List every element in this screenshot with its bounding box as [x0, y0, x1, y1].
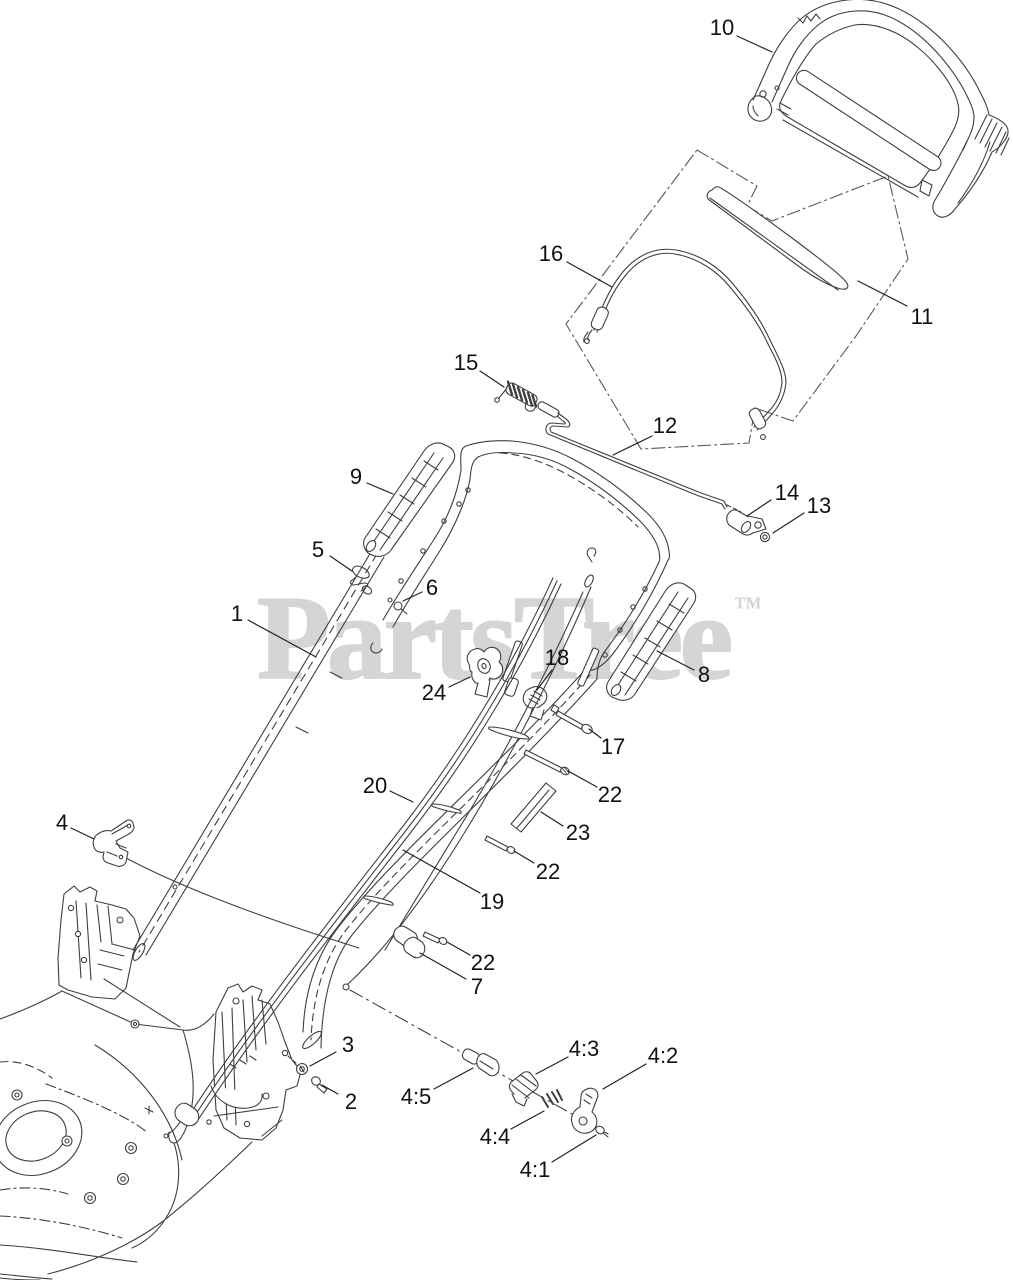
svg-text:3: 3 [342, 1032, 354, 1057]
svg-text:9: 9 [350, 464, 362, 489]
svg-text:22: 22 [471, 950, 495, 975]
svg-text:4: 4 [56, 810, 68, 835]
svg-text:22: 22 [598, 782, 622, 807]
svg-text:7: 7 [471, 974, 483, 999]
svg-text:5: 5 [312, 537, 324, 562]
svg-text:15: 15 [454, 350, 478, 375]
svg-text:11: 11 [911, 304, 934, 329]
svg-text:22: 22 [536, 859, 560, 884]
svg-text:24: 24 [422, 680, 446, 705]
svg-text:8: 8 [698, 662, 710, 687]
svg-text:6: 6 [426, 575, 438, 600]
svg-text:17: 17 [601, 734, 625, 759]
svg-text:4:4: 4:4 [480, 1124, 511, 1149]
svg-text:18: 18 [545, 645, 569, 670]
svg-text:10: 10 [710, 15, 734, 40]
svg-text:1: 1 [231, 601, 243, 626]
svg-text:19: 19 [480, 889, 504, 914]
svg-text:4:2: 4:2 [648, 1043, 679, 1068]
svg-text:4:3: 4:3 [569, 1036, 600, 1061]
svg-text:23: 23 [566, 820, 590, 845]
svg-text:12: 12 [653, 413, 677, 438]
svg-text:14: 14 [775, 480, 799, 505]
svg-text:2: 2 [345, 1089, 357, 1114]
svg-text:™: ™ [734, 592, 762, 623]
svg-text:4:5: 4:5 [401, 1084, 432, 1109]
svg-text:20: 20 [363, 773, 387, 798]
svg-text:13: 13 [807, 493, 831, 518]
svg-text:4:1: 4:1 [520, 1157, 551, 1182]
svg-text:16: 16 [539, 241, 563, 266]
